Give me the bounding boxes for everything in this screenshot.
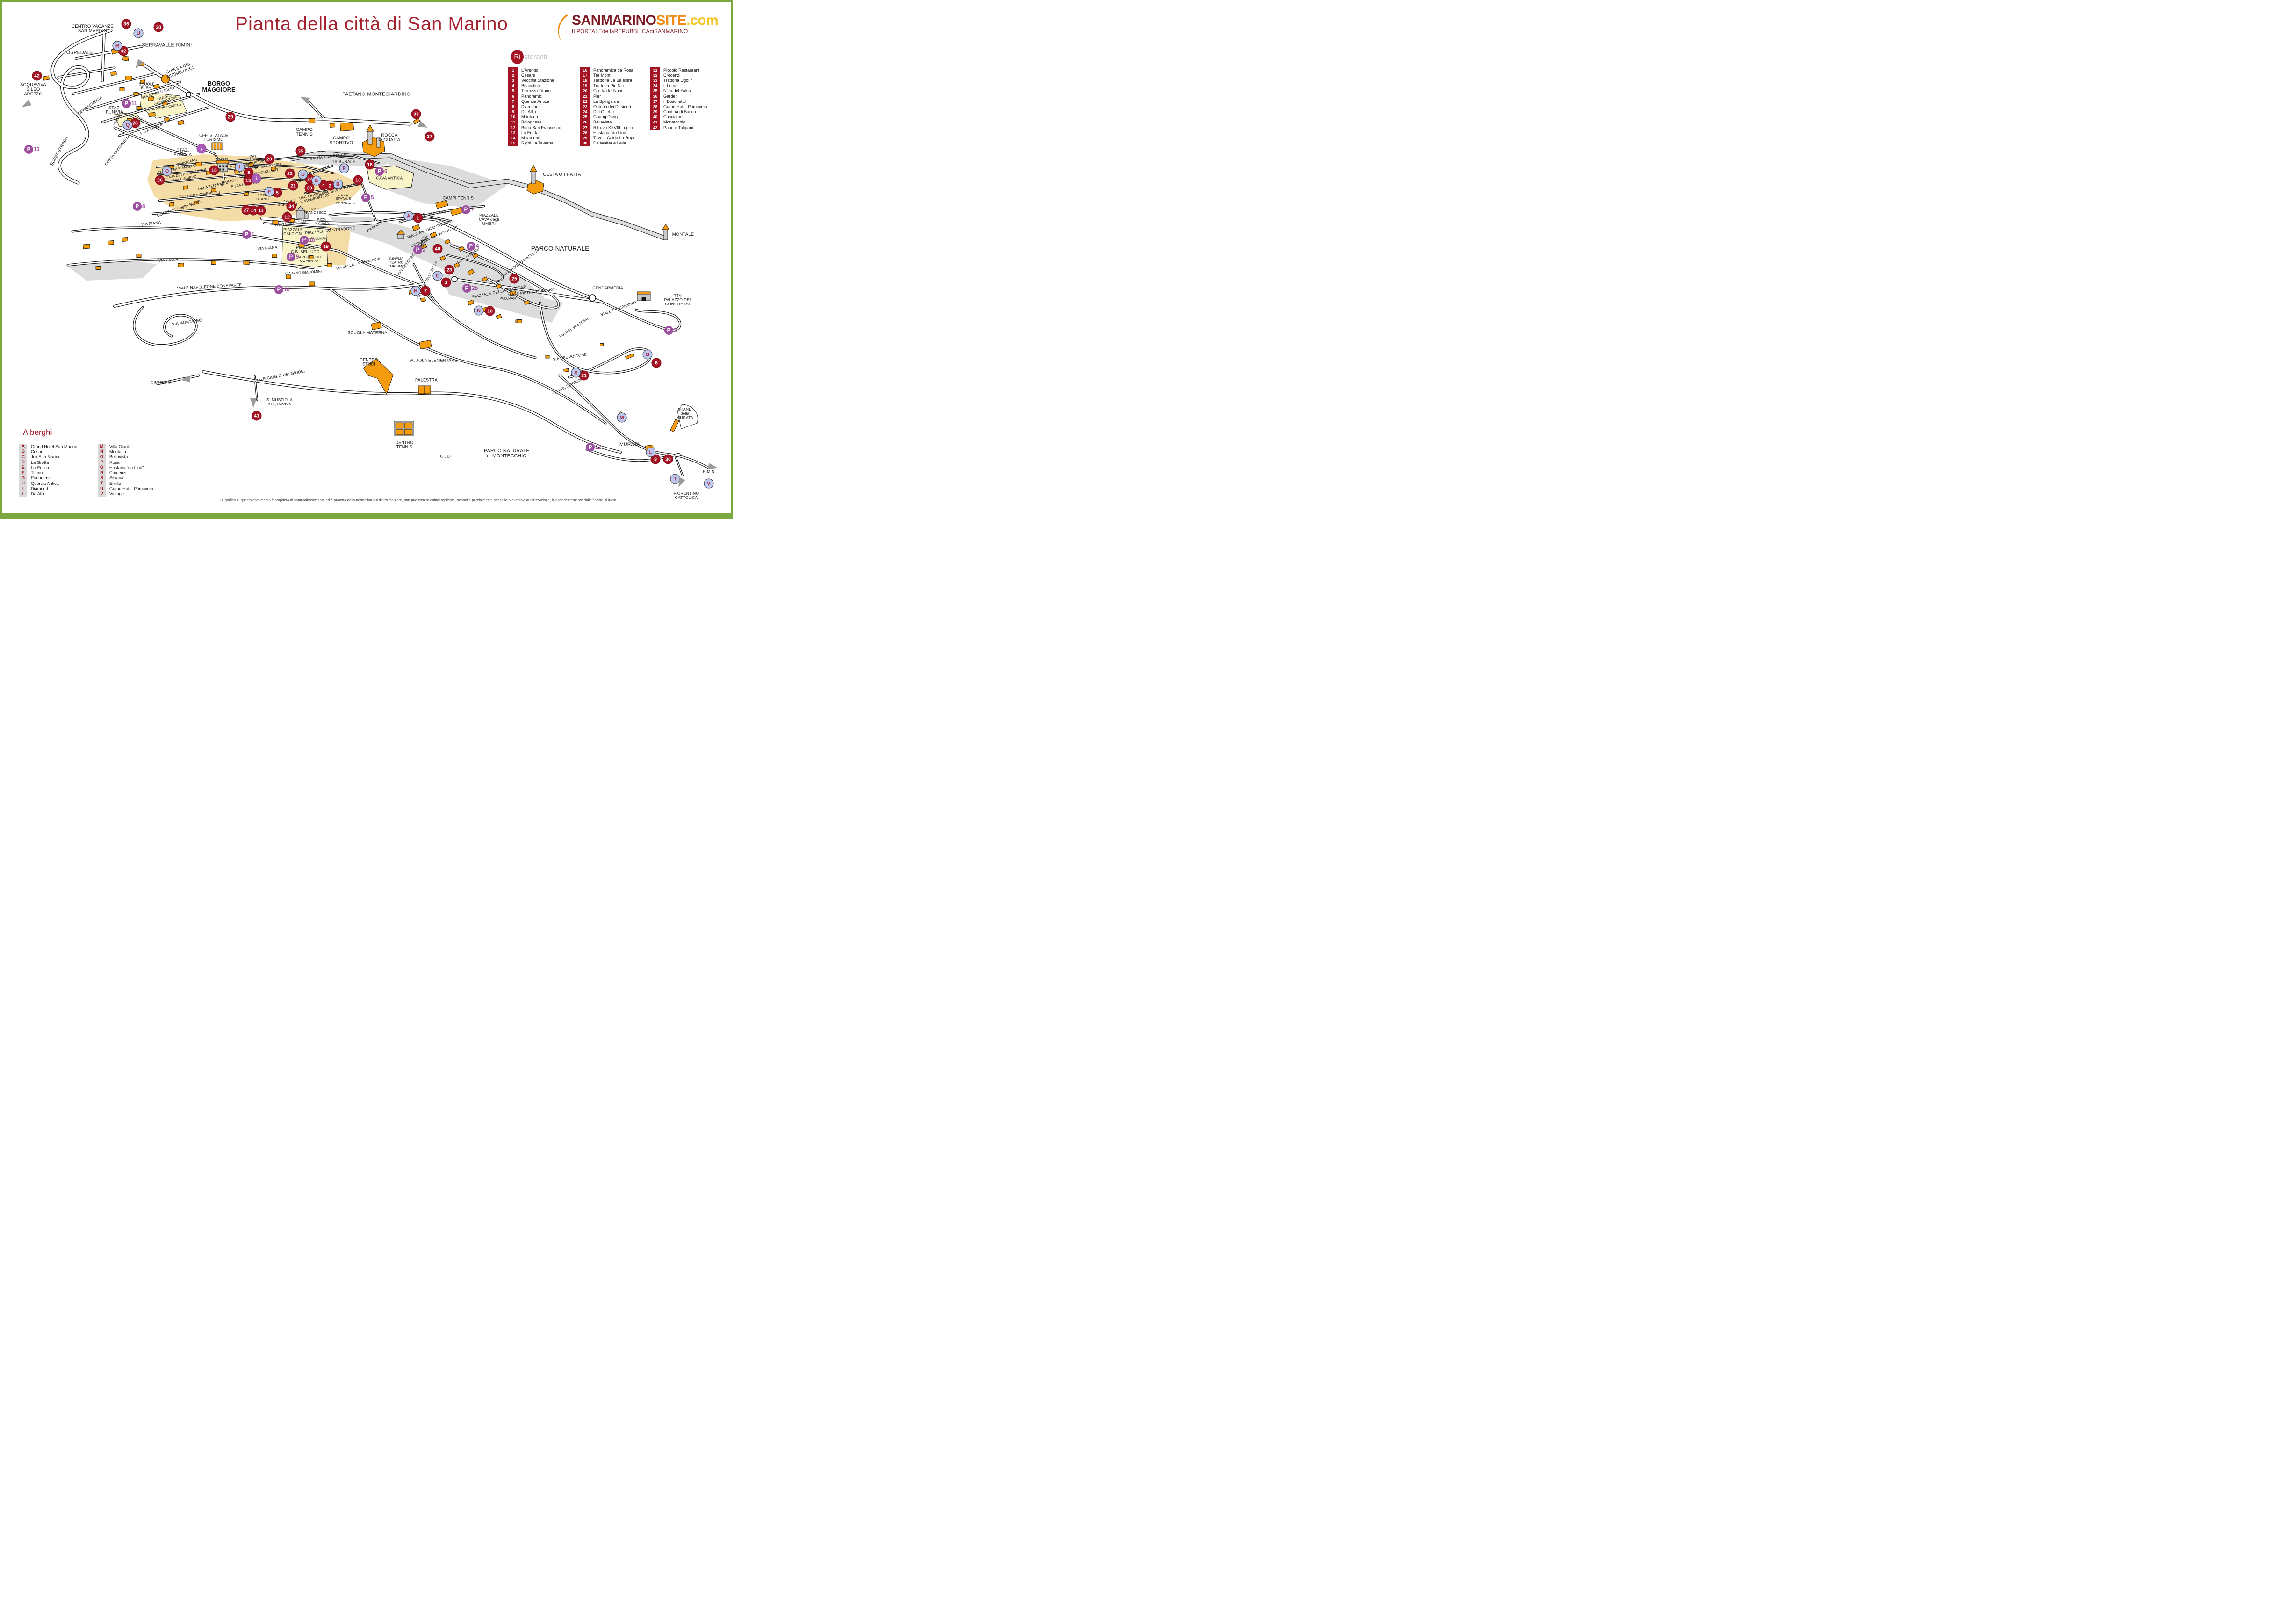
building	[517, 320, 522, 323]
building	[211, 261, 216, 265]
building	[139, 62, 144, 66]
building	[169, 165, 174, 169]
building	[140, 80, 145, 84]
legend-label: Nido del Falco	[660, 88, 691, 93]
building	[83, 244, 90, 249]
legend-row: 10Montana	[508, 115, 580, 120]
legend-key: 37	[650, 99, 660, 104]
legend-label: La Grotta	[27, 460, 49, 465]
legend-key: 1	[508, 67, 518, 72]
legend-key: D	[19, 460, 27, 465]
legend-label: Cesare	[518, 73, 535, 78]
building	[125, 76, 132, 80]
legend-label: Trattoria La Balestra	[590, 78, 632, 83]
legend-key: 9	[508, 109, 518, 115]
legend-key: 30	[580, 141, 590, 146]
building	[178, 263, 184, 267]
building	[412, 224, 420, 231]
legend-key: L	[19, 491, 27, 497]
legend-label: Grand Hotel San Marino	[27, 444, 77, 449]
legend-key: 41	[650, 120, 660, 125]
building	[249, 162, 254, 166]
legend-label: Panoramic	[27, 476, 51, 480]
michelucci-church-icon	[161, 75, 170, 83]
building	[178, 120, 184, 125]
building	[163, 101, 168, 105]
legend-row: 3Vecchia Stazione	[508, 78, 580, 83]
legend-row: 5Terrazza Titano	[508, 88, 580, 94]
legend-key: U	[98, 486, 106, 491]
building	[194, 201, 199, 204]
building	[451, 207, 463, 216]
legend-row: 28Hostaria "da Lino"	[580, 130, 650, 135]
legend-ristoranti: Ristoranti 1L'Arengo2Cesare3Vecchia Staz…	[508, 49, 731, 146]
legend-label: Diamond	[27, 486, 48, 491]
legend-row: 24Del Ghetto	[580, 109, 650, 115]
legend-label: Terrazza Titano	[518, 88, 551, 93]
legend-row: 12Buca San Francesco	[508, 125, 580, 130]
palestra-icon	[418, 386, 431, 394]
building	[524, 301, 529, 305]
legend-key: 24	[580, 109, 590, 115]
legend-row: 9Da Alfio	[508, 109, 580, 115]
legend-key: 19	[580, 83, 590, 88]
legend-key: H	[19, 481, 27, 486]
building	[111, 48, 120, 54]
legend-row: NMontana	[98, 449, 153, 454]
building	[272, 254, 277, 258]
building	[330, 123, 335, 128]
building	[244, 261, 249, 265]
legend-row: 33Trattoria Ugolini	[650, 78, 707, 83]
building	[196, 162, 202, 166]
legend-label: La Spingarda	[590, 99, 619, 104]
legend-row: LDa Alfio	[19, 491, 98, 497]
alberghi-columns: AGrand Hotel San MarinoBCesareCJoli San …	[19, 444, 187, 497]
legend-key: F	[19, 470, 27, 475]
legend-row: 20Grotta dei Nani	[580, 88, 650, 94]
legend-row: 21Pier	[580, 94, 650, 99]
legend-key: P	[98, 460, 106, 465]
legend-label: Il Boschetto	[660, 99, 686, 104]
legend-key: 5	[508, 88, 518, 94]
building	[468, 300, 474, 305]
legend-key: B	[19, 449, 27, 454]
legend-key: R	[98, 470, 106, 475]
legend-row: 37Il Boschetto	[650, 99, 707, 104]
legend-label: La Fratta	[518, 130, 539, 135]
legend-label: Cantina di Bacco	[660, 109, 696, 114]
legend-label: Panoramica da Rosa	[590, 68, 633, 72]
centro-studi-icon	[363, 359, 393, 394]
legend-row: 15Righi La Taverna	[508, 141, 580, 146]
legend-key: 16	[580, 67, 590, 72]
legend-label: Quercia Antica	[27, 481, 59, 486]
legend-label: Joli San Marino	[27, 455, 60, 459]
building	[127, 118, 132, 122]
legend-key: 10	[508, 115, 518, 120]
legend-column: MVilla GiardiNMontanaOBellavistaPRosaQHo…	[98, 444, 153, 497]
legend-key: 3	[508, 78, 518, 83]
building	[211, 188, 216, 192]
legend-label: Montana	[518, 115, 538, 119]
cesta-castle-icon	[527, 165, 544, 194]
legend-key: 21	[580, 94, 590, 99]
legend-key: 31	[650, 67, 660, 72]
legend-label: Trattoria Ugolini	[660, 78, 694, 83]
building	[371, 322, 381, 330]
legend-row: DLa Grotta	[19, 460, 98, 465]
legend-row: 7Quercia Antica	[508, 99, 580, 104]
legend-label: Garden	[660, 94, 678, 99]
legend-label: Miramonti	[518, 136, 540, 140]
legend-key: 40	[650, 115, 660, 120]
legend-label: Vintage	[106, 491, 124, 496]
legend-row: 35Nido del Falco	[650, 88, 707, 94]
legend-label: Ritrovo XXVIII Luglio	[590, 125, 633, 130]
legend-row: SSilvana	[98, 476, 153, 481]
legend-label: Bellavista	[590, 120, 612, 124]
legend-row: 32Crocenzi	[650, 72, 707, 78]
building	[299, 244, 304, 247]
legend-label: La Rocca	[27, 465, 49, 470]
legend-key: I	[19, 486, 27, 491]
legend-key: 33	[650, 78, 660, 83]
legend-key: 2	[508, 72, 518, 78]
building	[271, 167, 276, 171]
building	[327, 264, 332, 267]
legend-label: Piccolo Restaurant	[660, 68, 699, 72]
building	[600, 344, 604, 346]
turismo-office-icon	[212, 143, 222, 150]
legend-alberghi: Alberghi AGrand Hotel San MarinoBCesareC…	[19, 428, 187, 497]
legend-label: Cesare	[27, 449, 45, 454]
legend-row: 30Da Walter e Lella	[580, 141, 650, 146]
legend-label: L'Arengo	[518, 68, 539, 72]
logo-subtitle: ILPORTALEdellaREPUBBLICAdiSANMARINO	[572, 29, 731, 35]
logo-part1: SANMARINO	[572, 13, 656, 28]
legend-row: 25Guang Dong	[580, 115, 650, 120]
legend-ristoranti-title: Ristoranti	[511, 49, 731, 64]
legend-key: 25	[580, 115, 590, 120]
legend-label: Cacciatori	[660, 115, 683, 119]
legend-column: 1L'Arengo2Cesare3Vecchia Stazione4Beccaf…	[508, 67, 580, 146]
legend-row: AGrand Hotel San Marino	[19, 444, 98, 449]
legend-label: Guang Dong	[590, 115, 618, 119]
legend-key: G	[19, 476, 27, 481]
legend-row: CJoli San Marino	[19, 455, 98, 460]
building	[286, 275, 291, 279]
legend-column: 16Panoramica da Rosa17Tre Monti18Trattor…	[580, 67, 650, 146]
legend-label: Pier	[590, 94, 601, 99]
legend-label: Grand Hotel Primavera	[660, 104, 707, 109]
building	[134, 92, 139, 96]
legend-key: 42	[650, 125, 660, 130]
legend-key: 22	[580, 99, 590, 104]
legend-label: Da Walter e Lella	[590, 141, 626, 145]
building	[149, 112, 156, 116]
legend-row: 36Garden	[650, 94, 707, 99]
legend-label: Da Alfio	[518, 109, 536, 114]
legend-label: Tre Monti	[590, 73, 611, 78]
legend-key: 14	[508, 135, 518, 140]
legend-column: 31Piccolo Restaurant32Crocenzi33Trattori…	[650, 67, 707, 146]
legend-key: 38	[650, 104, 660, 109]
legend-key: A	[19, 444, 27, 449]
building	[122, 237, 128, 241]
legend-alberghi-title: Alberghi	[23, 428, 65, 437]
logo-text: SANMARINOSITE.com	[572, 13, 731, 29]
legend-row: MVilla Giardi	[98, 444, 153, 449]
legend-row: TEmilia	[98, 481, 153, 486]
legend-row: VVintage	[98, 491, 153, 497]
legend-key: E	[19, 465, 27, 470]
legend-row: 6Panoramic	[508, 94, 580, 99]
legend-row: FTitano	[19, 470, 98, 475]
legend-label: Rosa	[106, 460, 119, 465]
building	[420, 298, 425, 302]
legend-row: 4Beccafico	[508, 83, 580, 88]
legend-label: Righi La Taverna	[518, 141, 554, 145]
building	[244, 192, 249, 196]
building	[273, 220, 278, 224]
legend-row: 39Cantina di Bacco	[650, 109, 707, 115]
building	[137, 254, 141, 258]
legend-label: Il Loco	[660, 83, 676, 88]
legend-key: 6	[508, 94, 518, 99]
logo-part2: SITE	[656, 13, 687, 28]
legend-key: 18	[580, 78, 590, 83]
building	[270, 192, 275, 196]
building	[619, 412, 625, 418]
legend-key: 34	[650, 83, 660, 88]
building	[546, 355, 549, 358]
rtv-congressi-icon	[637, 292, 650, 301]
legend-row: 27Ritrovo XXVIII Luglio	[580, 125, 650, 130]
legend-label: Osteria dei Desideri	[590, 104, 631, 109]
map-page: CENTRO VACANZESAN MARINOOSPEDALESERRAVAL…	[0, 0, 733, 519]
legend-row: QHostaria "da Lino"	[98, 465, 153, 470]
legend-label: Trattoria Pic Nic	[590, 83, 624, 88]
building	[169, 202, 174, 206]
legend-key: 28	[580, 130, 590, 135]
building	[482, 307, 488, 312]
legend-row: ELa Rocca	[19, 465, 98, 470]
building	[309, 118, 315, 123]
legend-row: HQuercia Antica	[19, 481, 98, 486]
legend-key: M	[98, 444, 106, 449]
building	[309, 256, 313, 259]
legend-key: 17	[580, 72, 590, 78]
legend-row: 11Bolognese	[508, 120, 580, 125]
legend-key: 27	[580, 125, 590, 130]
building	[206, 171, 212, 175]
legend-row: 40Cacciatori	[650, 115, 707, 120]
stand-murata-outline	[677, 404, 698, 429]
legend-row: 38Grand Hotel Primavera	[650, 104, 707, 109]
legend-key: 13	[508, 130, 518, 135]
building	[137, 107, 141, 110]
ristoranti-badge: Ri	[511, 50, 524, 64]
legend-row: 29Tavola Calda La Rupe	[580, 135, 650, 140]
legend-row: 42Pane e Tulipani	[650, 125, 707, 130]
building	[164, 117, 169, 122]
legend-key: V	[98, 491, 106, 497]
legend-label: Beccafico	[518, 83, 540, 88]
legend-row: GPanoramic	[19, 476, 98, 481]
legend-row: 14Miramonti	[508, 135, 580, 140]
legend-key: 15	[508, 141, 518, 146]
building	[43, 76, 49, 80]
legend-label: Diamone	[518, 104, 539, 109]
legend-row: UGrand Hotel Primavera	[98, 486, 153, 491]
legend-label: Grand Hotel Primavera	[106, 486, 153, 491]
legend-key: 12	[508, 125, 518, 130]
legend-row: OBellavista	[98, 455, 153, 460]
building	[413, 118, 420, 124]
legend-row: RCrocenzi	[98, 470, 153, 475]
legend-label: Tavola Calda La Rupe	[590, 136, 635, 140]
ristoranti-columns: 1L'Arengo2Cesare3Vecchia Stazione4Beccaf…	[508, 67, 731, 146]
legend-row: IDiamond	[19, 486, 98, 491]
legend-label: Villa Giardi	[106, 444, 130, 449]
building	[290, 218, 295, 222]
legend-row: BCesare	[19, 449, 98, 454]
legend-row: 8Diamone	[508, 104, 580, 109]
legend-key: O	[98, 455, 106, 460]
copyright-disclaimer: La grafica di questo documento è proprie…	[189, 498, 648, 502]
legend-row: 22La Spingarda	[580, 99, 650, 104]
legend-label: Crocenzi	[106, 470, 126, 475]
building	[496, 314, 502, 319]
legend-row: PRosa	[98, 460, 153, 465]
legend-key: T	[98, 481, 106, 486]
legend-key: 35	[650, 88, 660, 94]
legend-row: 34Il Loco	[650, 83, 707, 88]
page-title: Pianta della città di San Marino	[222, 14, 521, 35]
guaita-castle-icon	[362, 125, 385, 157]
legend-row: 18Trattoria La Balestra	[580, 78, 650, 83]
legend-label: Buca San Francesco	[518, 125, 561, 130]
building	[235, 170, 240, 173]
legend-key: 11	[508, 120, 518, 125]
legend-label: Titano	[27, 470, 43, 475]
legend-key: 36	[650, 94, 660, 99]
legend-label: Bolognese	[518, 120, 541, 124]
building	[122, 56, 129, 61]
legend-key: Q	[98, 465, 106, 470]
legend-label: Bellavista	[106, 455, 128, 459]
legend-row: 13La Fratta	[508, 130, 580, 135]
legend-row: 19Trattoria Pic Nic	[580, 83, 650, 88]
legend-key: 4	[508, 83, 518, 88]
legend-key: 7	[508, 99, 518, 104]
legend-key: 29	[580, 135, 590, 140]
building	[626, 354, 634, 359]
centro-tennis-icon	[394, 421, 414, 435]
legend-row: 31Piccolo Restaurant	[650, 67, 707, 72]
legend-label: Da Alfio	[27, 491, 46, 496]
building	[183, 186, 188, 189]
legend-label: Vecchia Stazione	[518, 78, 554, 83]
legend-key: 20	[580, 88, 590, 94]
legend-label: Pane e Tulipani	[660, 125, 693, 130]
legend-row: 23Osteria dei Desideri	[580, 104, 650, 109]
building	[409, 290, 414, 295]
logo-part3: .com	[686, 13, 718, 28]
building	[96, 266, 101, 270]
legend-key: S	[98, 476, 106, 481]
legend-row: 26Bellavista	[580, 120, 650, 125]
legend-label: Quercia Antica	[518, 99, 549, 104]
legend-label: Grotta dei Nani	[590, 88, 622, 93]
legend-row: 16Panoramica da Rosa	[580, 67, 650, 72]
legend-label: Hostaria "da Lino"	[106, 465, 144, 470]
legend-label: Montecchio	[660, 120, 685, 124]
building	[419, 340, 432, 349]
legend-label: Hostaria "da Lino"	[590, 130, 627, 135]
legend-key: N	[98, 449, 106, 454]
legend-row: 1L'Arengo	[508, 67, 580, 72]
legend-key: 26	[580, 120, 590, 125]
legend-row: 17Tre Monti	[580, 72, 650, 78]
legend-label: Montana	[106, 449, 126, 454]
legend-key: 23	[580, 104, 590, 109]
legend-label: Silvana	[106, 476, 123, 480]
legend-row: 2Cesare	[508, 72, 580, 78]
palazzo-pubblico-icon	[216, 158, 229, 172]
building	[645, 445, 653, 450]
building	[670, 419, 679, 432]
legend-key: 39	[650, 109, 660, 115]
site-logo: SANMARINOSITE.com ILPORTALEdellaREPUBBLI…	[553, 13, 731, 35]
building	[108, 240, 114, 245]
building	[309, 282, 315, 286]
building	[340, 123, 353, 131]
legend-row: 41Montecchio	[650, 120, 707, 125]
legend-key: 8	[508, 104, 518, 109]
logo-swoosh-icon	[552, 14, 570, 43]
legend-key: 32	[650, 72, 660, 78]
legend-label: Panoramic	[518, 94, 542, 99]
building	[289, 170, 294, 173]
legend-label: Del Ghetto	[590, 109, 614, 114]
building	[111, 71, 117, 75]
legend-label: Crocenzi	[660, 73, 680, 78]
legend-label: Emilia	[106, 481, 121, 486]
building	[564, 368, 569, 372]
legend-key: C	[19, 455, 27, 460]
legend-column: AGrand Hotel San MarinoBCesareCJoli San …	[19, 444, 98, 497]
building	[120, 88, 124, 91]
